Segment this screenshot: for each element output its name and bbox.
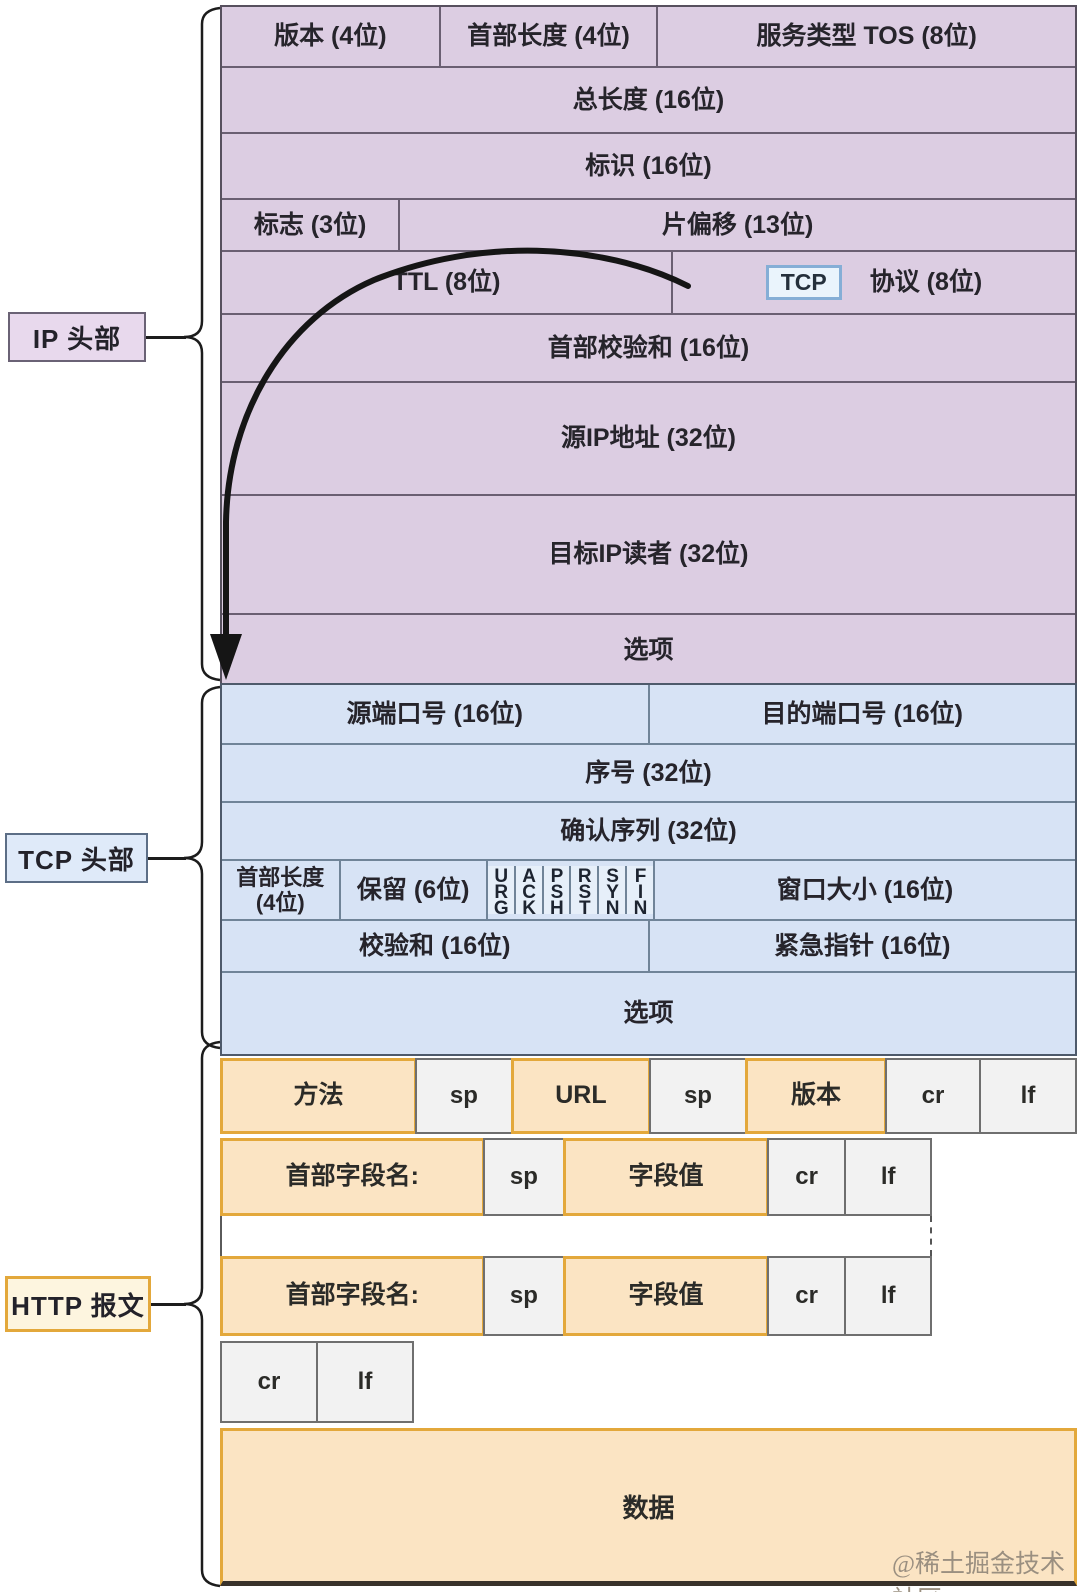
ip-field-options: 选项 xyxy=(222,615,1075,685)
http-cell-header-name-1: 首部字段名: xyxy=(220,1138,485,1216)
ip-row-2: 总长度 (16位) xyxy=(222,66,1075,132)
tcp-protocol-tag: TCP xyxy=(766,265,842,299)
http-message-label-box: HTTP 报文 xyxy=(5,1276,151,1332)
ip-header-table: 版本 (4位) 首部长度 (4位) 服务类型 TOS (8位) 总长度 (16位… xyxy=(220,5,1077,687)
brace-http xyxy=(184,1042,220,1586)
tcp-field-dest-port: 目的端口号 (16位) xyxy=(648,685,1076,743)
tcp-flags-group: URG ACK PSH RST SYN FIN xyxy=(486,861,653,919)
tcp-row-6: 选项 xyxy=(222,971,1075,1054)
ip-row-9: 选项 xyxy=(222,613,1075,685)
http-cell-sp-2: sp xyxy=(649,1058,747,1134)
ip-field-total-length: 总长度 (16位) xyxy=(222,68,1075,132)
tcp-flag-ack: ACK xyxy=(514,866,542,914)
tcp-field-ack-sequence: 确认序列 (32位) xyxy=(222,803,1075,859)
http-cell-sp-4: sp xyxy=(483,1256,566,1336)
tcp-header-table: 源端口号 (16位) 目的端口号 (16位) 序号 (32位) 确认序列 (32… xyxy=(220,683,1077,1056)
http-cell-cr-1: cr xyxy=(885,1058,981,1134)
http-cell-lf-3: lf xyxy=(844,1256,932,1336)
http-cell-sp-1: sp xyxy=(415,1058,513,1134)
tcp-field-window-size: 窗口大小 (16位) xyxy=(653,861,1075,919)
tcp-field-options: 选项 xyxy=(222,973,1075,1054)
http-cell-version: 版本 xyxy=(745,1058,887,1134)
ip-field-source-address: 源IP地址 (32位) xyxy=(222,383,1075,494)
ip-label-connector xyxy=(146,336,186,339)
ip-field-dest-address: 目标IP读者 (32位) xyxy=(222,496,1075,613)
ip-field-header-length: 首部长度 (4位) xyxy=(439,7,657,66)
ip-row-7: 源IP地址 (32位) xyxy=(222,381,1075,494)
ip-field-ttl: TTL (8位) xyxy=(222,252,671,313)
http-cell-lf-2: lf xyxy=(844,1138,932,1216)
tcp-flag-urg: URG xyxy=(488,866,514,914)
tcp-row-2: 序号 (32位) xyxy=(222,743,1075,801)
http-blank-line: cr lf xyxy=(220,1341,414,1423)
brace-ip xyxy=(184,8,220,680)
ip-field-protocol-label: 协议 (8位) xyxy=(870,268,983,297)
ip-row-8: 目标IP读者 (32位) xyxy=(222,494,1075,613)
http-cell-header-value-2: 字段值 xyxy=(563,1256,769,1336)
tcp-field-reserved: 保留 (6位) xyxy=(339,861,486,919)
http-cell-header-name-2: 首部字段名: xyxy=(220,1256,485,1336)
http-cell-url: URL xyxy=(511,1058,651,1134)
tcp-row-4: 首部长度 (4位) 保留 (6位) URG ACK PSH RST SYN FI… xyxy=(222,859,1075,919)
ip-field-tos: 服务类型 TOS (8位) xyxy=(656,7,1075,66)
ip-field-header-checksum: 首部校验和 (16位) xyxy=(222,315,1075,381)
http-label-connector xyxy=(151,1303,186,1306)
tcp-label-connector xyxy=(148,857,186,860)
http-headers-ellipsis xyxy=(220,1216,932,1256)
diagram-canvas: 版本 (4位) 首部长度 (4位) 服务类型 TOS (8位) 总长度 (16位… xyxy=(0,0,1080,1592)
tcp-field-source-port: 源端口号 (16位) xyxy=(222,685,648,743)
tcp-flag-fin: FIN xyxy=(625,866,653,914)
http-cell-cr-3: cr xyxy=(767,1256,847,1336)
ip-row-6: 首部校验和 (16位) xyxy=(222,313,1075,381)
http-cell-header-value-1: 字段值 xyxy=(563,1138,769,1216)
tcp-flag-psh: PSH xyxy=(542,866,570,914)
ip-field-protocol: TCP 协议 (8位) xyxy=(671,252,1075,313)
http-header-line-2: 首部字段名: sp 字段值 cr lf xyxy=(220,1256,932,1336)
watermark: @稀土掘金技术社区 xyxy=(892,1544,1080,1592)
http-cell-cr-2: cr xyxy=(767,1138,847,1216)
http-header-line-1: 首部字段名: sp 字段值 cr lf xyxy=(220,1138,932,1216)
ip-row-1: 版本 (4位) 首部长度 (4位) 服务类型 TOS (8位) xyxy=(222,7,1075,66)
http-cell-lf-final: lf xyxy=(316,1341,414,1423)
ip-field-identification: 标识 (16位) xyxy=(222,134,1075,198)
tcp-field-header-length: 首部长度 (4位) xyxy=(222,861,339,919)
tcp-row-1: 源端口号 (16位) 目的端口号 (16位) xyxy=(222,685,1075,743)
tcp-row-3: 确认序列 (32位) xyxy=(222,801,1075,859)
ip-field-version: 版本 (4位) xyxy=(222,7,439,66)
tcp-field-sequence: 序号 (32位) xyxy=(222,745,1075,801)
http-request-line: 方法 sp URL sp 版本 cr lf xyxy=(220,1058,1077,1134)
ip-row-4: 标志 (3位) 片偏移 (13位) xyxy=(222,198,1075,250)
http-cell-sp-3: sp xyxy=(483,1138,566,1216)
tcp-flag-rst: RST xyxy=(569,866,597,914)
http-cell-cr-final: cr xyxy=(220,1341,318,1423)
tcp-field-checksum: 校验和 (16位) xyxy=(222,921,648,971)
ip-header-label-box: IP 头部 xyxy=(8,312,146,362)
tcp-header-label-box: TCP 头部 xyxy=(5,833,148,883)
tcp-field-urgent-pointer: 紧急指针 (16位) xyxy=(648,921,1076,971)
tcp-flag-syn: SYN xyxy=(597,866,625,914)
ip-row-3: 标识 (16位) xyxy=(222,132,1075,198)
ip-field-flags: 标志 (3位) xyxy=(222,200,398,250)
http-cell-lf-1: lf xyxy=(979,1058,1077,1134)
tcp-row-5: 校验和 (16位) 紧急指针 (16位) xyxy=(222,919,1075,971)
ip-field-fragment-offset: 片偏移 (13位) xyxy=(398,200,1075,250)
http-cell-method: 方法 xyxy=(220,1058,417,1134)
ip-row-5: TTL (8位) TCP 协议 (8位) xyxy=(222,250,1075,313)
brace-tcp xyxy=(184,687,220,1048)
